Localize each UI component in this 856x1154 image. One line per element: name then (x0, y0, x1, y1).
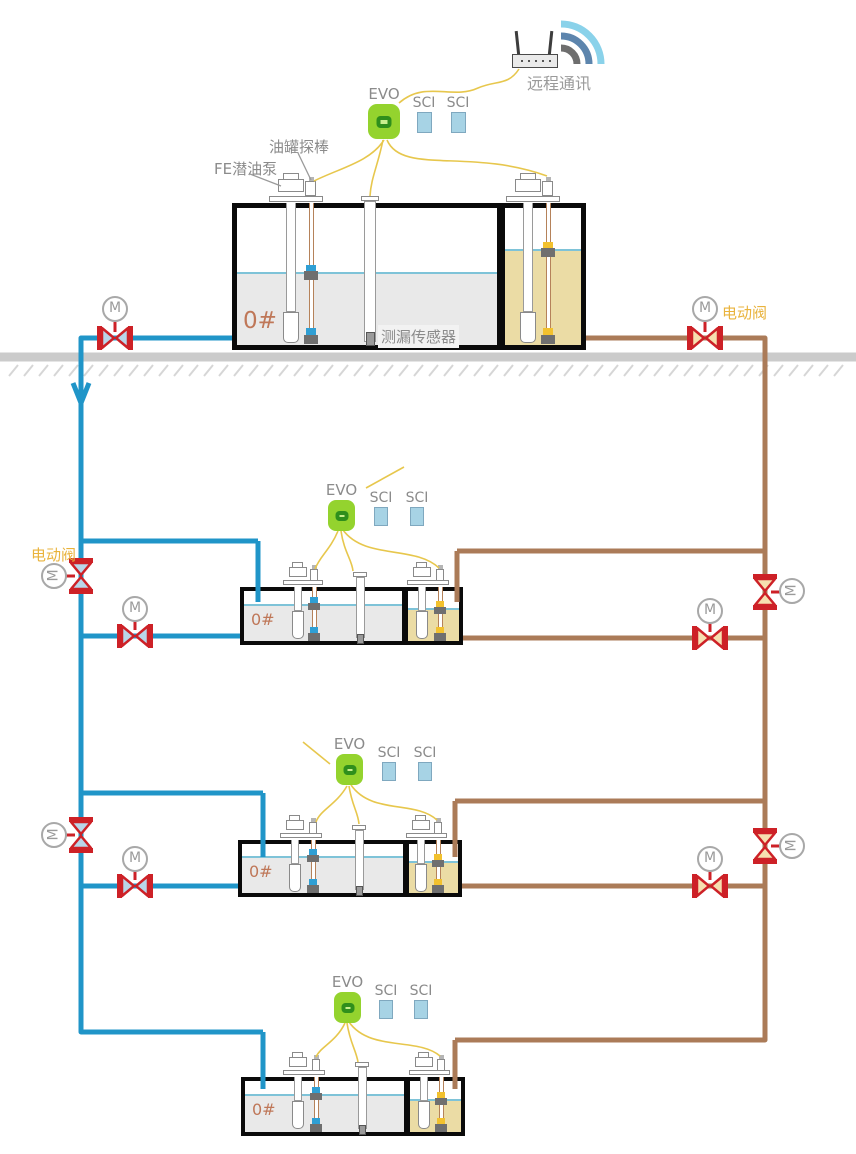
overlay-layer (0, 0, 856, 1154)
remote-comm-label: 远程通讯 (527, 70, 591, 94)
wifi-arc-inner (561, 48, 577, 64)
sci-label: SCI (401, 490, 433, 506)
evo-label: EVO (333, 735, 366, 753)
sci-module-2-1 (374, 507, 388, 526)
motor-supply-main-3: M (41, 822, 67, 848)
sci-module-3-2 (418, 762, 432, 781)
router-led (521, 60, 523, 62)
sci-module-4-2 (414, 1000, 428, 1019)
valve-supply-main-2-wedge-bottom (71, 577, 91, 589)
sci-module-1-2 (451, 112, 466, 133)
motor-return-main-3: M (779, 833, 805, 859)
sci-label: SCI (365, 490, 397, 506)
valve-supply-main-3-wedge-top (71, 822, 91, 834)
motor-letter: M (704, 850, 716, 866)
leader-tank-probe (298, 153, 311, 180)
motor-letter: M (699, 300, 711, 316)
leak-sensor-label: 测漏传感器 (378, 325, 459, 348)
valve-supply-tank3-wedge-left (122, 876, 134, 896)
valve-return-tank3-wedge-right (711, 876, 723, 896)
sci-label: SCI (370, 983, 402, 999)
valve-supply-tank1-wedge-right (116, 328, 128, 348)
valve-supply-tank2-wedge-right (136, 626, 148, 646)
valve-return-main-2-wedge-bottom (755, 593, 775, 605)
sci-label: SCI (373, 745, 405, 761)
valve-supply-tank1-wedge-left (102, 328, 114, 348)
valve-return-tank2-wedge-left (697, 628, 709, 648)
motor-return-main-2: M (779, 578, 805, 604)
signal-wire-evo2-probe-left (315, 531, 338, 569)
evo-screen (343, 765, 356, 775)
evo-label: EVO (365, 85, 403, 103)
signal-wire-evo3-probe-right (351, 785, 437, 820)
router-led (535, 60, 537, 62)
evo-screen (341, 1003, 354, 1013)
tank-probe-label: 油罐探棒 (269, 136, 329, 157)
evo-console-4 (334, 992, 361, 1023)
signal-wire-evo2-probe-right (343, 530, 439, 568)
valve-supply-tank1 (95, 318, 135, 358)
valve-return-tank2-wedge-right (711, 628, 723, 648)
valve-supply-tank2-wedge-left (122, 626, 134, 646)
signal-wire-evo3-uplink (303, 742, 330, 764)
evo-label: EVO (331, 973, 364, 991)
sci-label: SCI (408, 95, 440, 111)
evo-screen (335, 511, 348, 521)
sci-module-2-2 (410, 507, 424, 526)
valve-supply-tank2 (115, 616, 155, 656)
motor-letter: M (129, 600, 141, 616)
motor-letter: M (44, 828, 65, 840)
evo-console-3 (336, 754, 363, 785)
valve-return-main-3-wedge-top (755, 833, 775, 845)
motor-supply-main-2: M (41, 563, 67, 589)
router-led (542, 60, 544, 62)
signal-wire-evo4-leak (347, 1023, 358, 1062)
router-body (512, 54, 558, 68)
motor-supply-tank1: M (102, 296, 128, 322)
motor-letter: M (782, 839, 803, 851)
valve-return-tank3-wedge-left (697, 876, 709, 896)
motor-supply-tank3: M (122, 846, 148, 872)
router-led (549, 60, 551, 62)
valve-return-tank1 (685, 318, 725, 358)
motor-letter: M (44, 569, 65, 581)
signal-wire-evo2-leak (341, 531, 353, 571)
motor-letter: M (782, 584, 803, 596)
motor-return-tank1: M (692, 296, 718, 322)
valve-return-tank3 (690, 866, 730, 906)
motor-letter: M (109, 300, 121, 316)
sci-module-4-1 (379, 1000, 393, 1019)
signal-wire-evo3-probe-left (316, 786, 347, 822)
valve-supply-main-3 (61, 815, 101, 855)
evo-console-2 (328, 500, 355, 531)
motor-return-tank2: M (697, 598, 723, 624)
valve-return-tank2 (690, 618, 730, 658)
fe-pump-label: FE潜油泵 (214, 158, 277, 179)
valve-supply-tank3-wedge-right (136, 876, 148, 896)
signal-wire-evo4-probe-left (316, 1023, 345, 1057)
electric-valve-label-right: 电动阀 (722, 302, 767, 323)
motor-letter: M (704, 602, 716, 618)
sci-label: SCI (409, 745, 441, 761)
valve-supply-tank1-stem (114, 322, 117, 332)
evo-label: EVO (325, 481, 358, 499)
valve-supply-tank3 (115, 866, 155, 906)
valve-return-tank1-wedge-right (706, 328, 718, 348)
signal-wire-evo2-uplink (366, 467, 404, 488)
motor-letter: M (129, 850, 141, 866)
router-led (528, 60, 530, 62)
sci-label: SCI (442, 95, 474, 111)
signal-wire-evo1-probe-right (387, 140, 547, 176)
evo-screen (377, 116, 392, 128)
fuel-station-monitoring-diagram: 0#0#0#0#MMMMMMMMMMEVOSCISCIEVOSCISCIEVOS… (0, 0, 856, 1154)
valve-return-main-3-wedge-bottom (755, 847, 775, 859)
valve-return-tank1-stem (704, 322, 707, 332)
valve-return-tank1-wedge-left (692, 328, 704, 348)
motor-return-tank3: M (697, 846, 723, 872)
valve-supply-main-3-wedge-bottom (71, 836, 91, 848)
valve-return-main-2-wedge-top (755, 579, 775, 591)
electric-valve-label-left: 电动阀 (31, 544, 76, 565)
evo-console-1 (368, 104, 400, 139)
sci-label: SCI (405, 983, 437, 999)
sci-module-1-1 (417, 112, 432, 133)
sci-module-3-1 (382, 762, 396, 781)
motor-supply-tank2: M (122, 596, 148, 622)
signal-wire-evo4-probe-right (349, 1022, 440, 1056)
